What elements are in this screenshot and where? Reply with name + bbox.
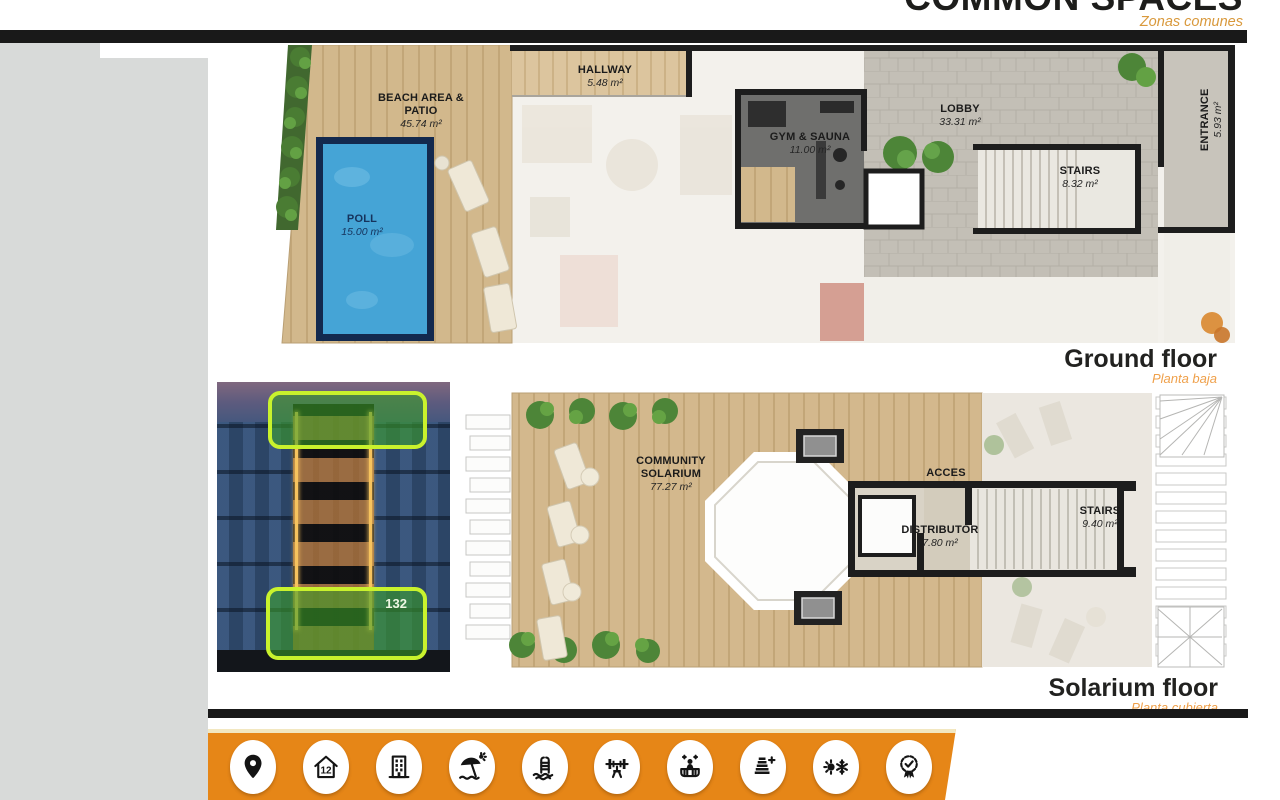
spiral-stair-bottom xyxy=(1158,607,1224,667)
swimming-pool xyxy=(316,137,434,341)
lobby-faded-strip xyxy=(864,277,1158,343)
ground-floor-highlight-box: 132 xyxy=(266,587,427,660)
amenities-bar: 12 xyxy=(208,729,956,800)
left-gray-step xyxy=(0,43,100,58)
page-header: COMMON SPACES Zonas comunes xyxy=(904,0,1243,30)
ground-floor-caption: Ground floor Planta baja xyxy=(1064,347,1217,386)
energy-rating-icon xyxy=(740,740,786,794)
quality-award-icon xyxy=(886,740,932,794)
gym-sauna-room xyxy=(738,93,864,225)
brochure-page: { "header": { "title": "COMMON SPACES", … xyxy=(0,0,1280,800)
hallway-floor xyxy=(512,45,690,97)
unit-number: 132 xyxy=(385,596,407,611)
beach-umbrella-icon xyxy=(449,740,495,794)
climate-control-icon xyxy=(813,740,859,794)
swimming-pool-ladder-icon xyxy=(522,740,568,794)
ground-floor-plan: BEACH AREA & PATIO 45.74 m² POLL 15.00 m… xyxy=(260,45,1235,345)
solarium-plan-drawing xyxy=(460,385,1235,675)
gym-bench-press-icon xyxy=(594,740,640,794)
house-12-icon: 12 xyxy=(303,740,349,794)
left-gray-column xyxy=(0,58,208,800)
svg-text:12: 12 xyxy=(320,765,332,776)
pergola-slats xyxy=(466,415,510,639)
octagon-skylight xyxy=(710,457,862,605)
top-divider-bar xyxy=(0,30,1247,43)
elevator xyxy=(866,171,922,227)
solarium-highlight-box xyxy=(268,391,427,449)
footer-divider-bar xyxy=(208,709,1248,718)
stair-core xyxy=(848,481,1136,577)
entrance-floor xyxy=(1164,45,1230,231)
solarium-floor-plan: COMMUNITY SOLARIUM 77.27 m² ACCES DISTRI… xyxy=(460,385,1235,675)
ground-stairs xyxy=(973,144,1141,234)
apartment-building-icon xyxy=(376,740,422,794)
ground-floor-plan-drawing xyxy=(260,45,1235,345)
jacuzzi-icon xyxy=(667,740,713,794)
hallway-edge xyxy=(512,95,690,97)
location-pin-icon xyxy=(230,740,276,794)
building-night-photo: 132 xyxy=(217,382,450,672)
spiral-stair-top xyxy=(1160,395,1224,457)
